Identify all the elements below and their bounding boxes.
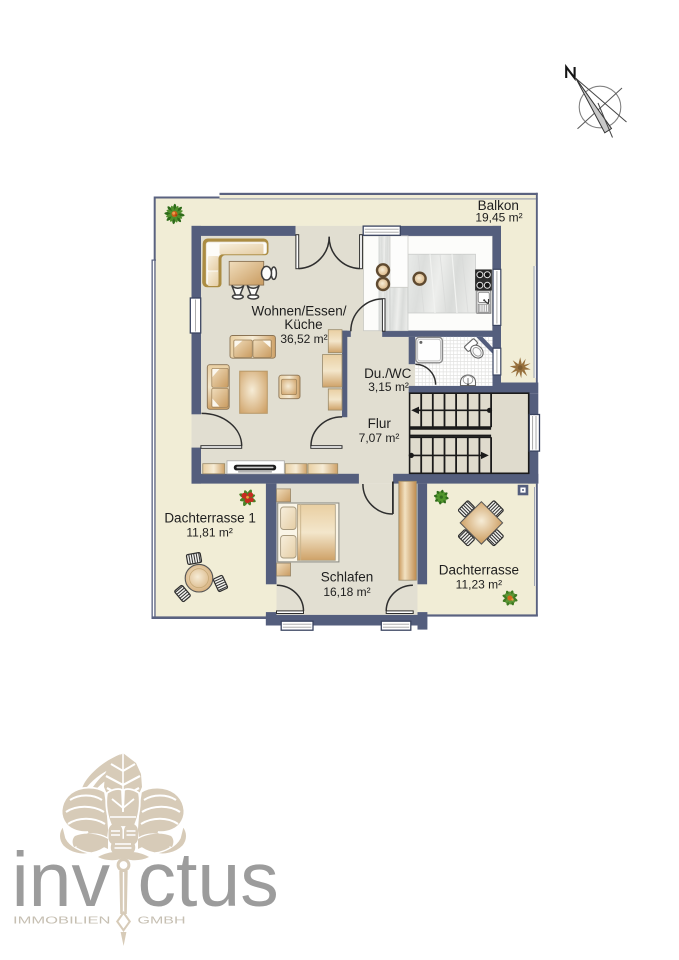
svg-text:3,15 m²: 3,15 m²	[368, 380, 409, 394]
svg-text:19,45 m²: 19,45 m²	[475, 211, 522, 225]
svg-text:GMBH: GMBH	[138, 916, 186, 927]
svg-text:Schlafen: Schlafen	[321, 570, 374, 585]
svg-text:inv: inv	[12, 837, 111, 923]
svg-text:7,07 m²: 7,07 m²	[359, 431, 400, 445]
svg-text:16,18 m²: 16,18 m²	[323, 585, 370, 599]
svg-text:11,23 m²: 11,23 m²	[456, 578, 502, 592]
svg-text:IMMOBILIEN: IMMOBILIEN	[13, 916, 111, 927]
svg-text:36,52 m²: 36,52 m²	[280, 332, 327, 346]
svg-text:Flur: Flur	[368, 416, 392, 431]
svg-text:Dachterrasse: Dachterrasse	[439, 563, 519, 578]
svg-text:Du./WC: Du./WC	[364, 366, 412, 381]
svg-text:Küche: Küche	[284, 317, 322, 332]
svg-text:ctus: ctus	[138, 837, 279, 923]
svg-text:Dachterrasse 1: Dachterrasse 1	[164, 511, 256, 526]
svg-text:11,81 m²: 11,81 m²	[186, 526, 232, 540]
